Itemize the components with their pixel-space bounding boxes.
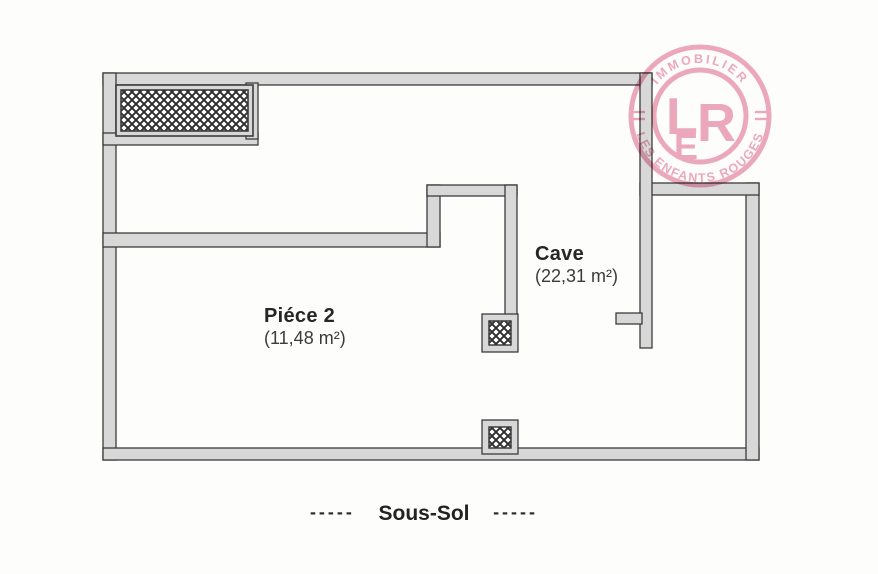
cave-divider-wall: [640, 73, 652, 348]
room-area-piece2: (11,48 m²): [264, 328, 346, 349]
agency-stamp: IMMOBILIER LES ENFANTS ROUGES L E R: [631, 47, 769, 185]
stamp-monogram-r-icon: R: [697, 93, 736, 153]
partition-wall-horizontal: [103, 233, 440, 247]
floor-plan-drawing: IMMOBILIER LES ENFANTS ROUGES L E R: [0, 0, 878, 574]
door-jamb: [616, 313, 642, 324]
stamp-monogram-e-icon: E: [674, 126, 698, 167]
staircase-hatch: [116, 85, 253, 136]
room-label-cave: Cave (22,31 m²): [535, 243, 618, 287]
room-label-piece2: Piéce 2 (11,48 m²): [264, 305, 346, 349]
column-post-lower-hatch: [489, 427, 511, 448]
room-name-piece2: Piéce 2: [264, 305, 346, 328]
outer-wall-bottom: [103, 448, 759, 460]
room-area-cave: (22,31 m²): [535, 266, 618, 287]
column-post-hatches: [489, 321, 511, 448]
room-name-cave: Cave: [535, 243, 618, 266]
outer-wall-top: [103, 73, 652, 85]
peninsula-wall-top: [427, 185, 517, 196]
column-post-upper-hatch: [489, 321, 511, 345]
floor-title: Sous-Sol: [378, 502, 469, 525]
plan-caption: ----- Sous-Sol -----: [0, 502, 863, 526]
peninsula-wall-vertical: [505, 185, 517, 316]
caption-right-dashes: -----: [493, 502, 538, 522]
outer-wall-right: [746, 183, 759, 460]
caption-left-dashes: -----: [310, 502, 355, 522]
floor-plan-page: IMMOBILIER LES ENFANTS ROUGES L E R Piéc…: [0, 0, 878, 574]
outer-wall-left: [103, 73, 116, 460]
